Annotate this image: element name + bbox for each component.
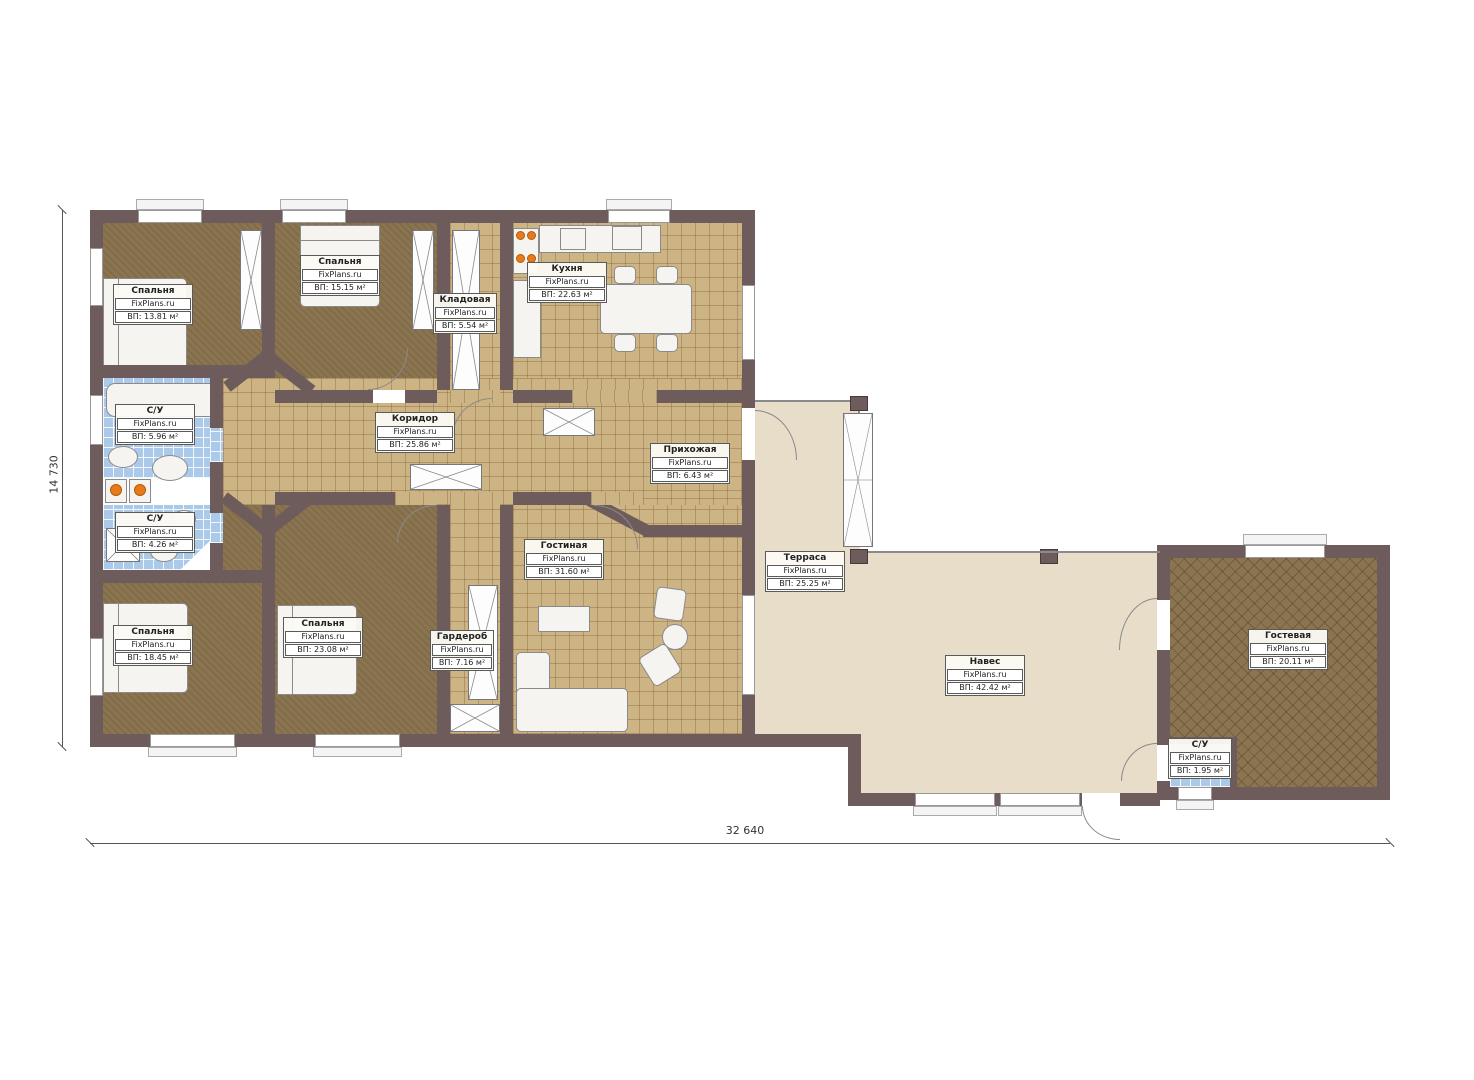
room-area: ВП: 20.11 м² <box>1250 656 1326 668</box>
room-label-bedroom-2: Спальня FixPlans.ru ВП: 15.15 м² <box>300 255 380 296</box>
room-area: ВП: 25.25 м² <box>767 578 843 590</box>
room-name: Коридор <box>377 414 453 425</box>
wall <box>262 505 275 734</box>
room-label-kitchen: Кухня FixPlans.ru ВП: 22.63 м² <box>527 262 607 303</box>
window <box>915 793 995 806</box>
window-sill <box>1176 800 1214 810</box>
room-area: ВП: 13.81 м² <box>115 311 191 323</box>
window <box>90 395 103 445</box>
room-area: ВП: 23.08 м² <box>285 644 361 656</box>
wardrobe-icon <box>412 230 434 330</box>
wall <box>262 223 275 365</box>
washer-drum-icon <box>134 484 146 496</box>
room-brand: FixPlans.ru <box>1170 752 1230 764</box>
canopy-edge <box>868 551 1160 553</box>
chair-icon <box>656 334 678 352</box>
dimension-line-horizontal <box>90 843 1390 844</box>
room-brand: FixPlans.ru <box>377 426 453 438</box>
room-area: ВП: 22.63 м² <box>529 289 605 301</box>
window-sill <box>136 199 204 210</box>
kitchen-counter <box>539 225 661 253</box>
room-brand: FixPlans.ru <box>115 298 191 310</box>
room-label-corridor: Коридор FixPlans.ru ВП: 25.86 м² <box>375 412 455 453</box>
guest-door-opening <box>1157 600 1170 650</box>
window <box>1000 793 1080 806</box>
room-name: Прихожая <box>652 445 728 456</box>
door-opening <box>572 390 657 403</box>
washer-drum-icon <box>110 484 122 496</box>
window-sill <box>148 747 237 757</box>
wall <box>275 390 375 403</box>
room-area: ВП: 42.42 м² <box>947 682 1023 694</box>
canopy-door-opening <box>1082 793 1120 806</box>
room-name: Спальня <box>115 627 191 638</box>
terrace-stairs-icon <box>843 413 873 547</box>
room-label-bathroom-2: С/У FixPlans.ru ВП: 4.26 м² <box>115 512 195 553</box>
room-brand: FixPlans.ru <box>947 669 1023 681</box>
wall <box>513 390 572 403</box>
room-brand: FixPlans.ru <box>432 644 492 656</box>
door-opening <box>591 492 643 505</box>
room-brand: FixPlans.ru <box>302 269 378 281</box>
chair-icon <box>614 334 636 352</box>
chair-icon <box>614 266 636 284</box>
wardrobe-icon <box>410 464 482 490</box>
room-brand: FixPlans.ru <box>767 565 843 577</box>
wall <box>405 390 437 403</box>
terrace-edge <box>755 400 860 402</box>
room-label-hallway: Прихожая FixPlans.ru ВП: 6.43 м² <box>650 443 730 484</box>
room-area: ВП: 6.43 м² <box>652 470 728 482</box>
wall <box>437 505 450 734</box>
wardrobe-icon <box>240 230 262 330</box>
room-name: Спальня <box>115 286 191 297</box>
window-sill <box>913 806 997 816</box>
coffee-table-icon <box>538 606 590 632</box>
room-name: Спальня <box>285 619 361 630</box>
stove-burner-icon <box>516 231 525 240</box>
chair-icon <box>656 266 678 284</box>
room-brand: FixPlans.ru <box>117 418 193 430</box>
room-area: ВП: 7.16 м² <box>432 657 492 669</box>
room-brand: FixPlans.ru <box>115 639 191 651</box>
dining-table-icon <box>600 284 692 334</box>
window <box>282 210 346 223</box>
room-area: ВП: 5.96 м² <box>117 431 193 443</box>
wardrobe-icon <box>450 704 500 732</box>
door-opening <box>210 428 223 462</box>
room-brand: FixPlans.ru <box>529 276 605 288</box>
window <box>138 210 202 223</box>
room-name: Гостиная <box>526 541 602 552</box>
room-label-storage: Кладовая FixPlans.ru ВП: 5.54 м² <box>433 293 497 334</box>
door-arc <box>1082 806 1120 840</box>
room-brand: FixPlans.ru <box>117 526 193 538</box>
room-area: ВП: 1.95 м² <box>1170 765 1230 777</box>
window <box>90 248 103 306</box>
wardrobe-icon <box>543 408 595 436</box>
door-opening <box>373 390 405 403</box>
room-name: Навес <box>947 657 1023 668</box>
room-label-terrace: Терраса FixPlans.ru ВП: 25.25 м² <box>765 551 845 592</box>
room-area: ВП: 31.60 м² <box>526 566 602 578</box>
wall <box>657 390 742 403</box>
window-sill <box>1243 534 1327 545</box>
room-name: Спальня <box>302 257 378 268</box>
room-name: С/У <box>1170 740 1230 751</box>
floor-plan: Спальня FixPlans.ru ВП: 13.81 м² Спальня… <box>0 0 1474 1080</box>
dimension-height-label: 14 730 <box>48 435 61 515</box>
room-name: Гардероб <box>432 632 492 643</box>
wall <box>500 505 513 734</box>
window <box>742 285 755 360</box>
room-brand: FixPlans.ru <box>285 631 361 643</box>
room-name: С/У <box>117 514 193 525</box>
room-label-guest-bathroom: С/У FixPlans.ru ВП: 1.95 м² <box>1168 738 1232 779</box>
sink-icon <box>152 455 188 481</box>
room-area: ВП: 15.15 м² <box>302 282 378 294</box>
dimension-width-label: 32 640 <box>700 824 790 837</box>
room-name: Кухня <box>529 264 605 275</box>
window-sill <box>998 806 1082 816</box>
window <box>150 734 235 747</box>
room-label-bedroom-4: Спальня FixPlans.ru ВП: 23.08 м² <box>283 617 363 658</box>
sofa-icon <box>516 688 628 732</box>
room-name: Гостевая <box>1250 631 1326 642</box>
toilet-icon <box>108 446 138 468</box>
bed-pillow-icon <box>300 225 380 241</box>
dimension-line-vertical <box>62 210 63 747</box>
window <box>608 210 670 223</box>
room-brand: FixPlans.ru <box>435 307 495 319</box>
canopy-post <box>850 549 868 564</box>
fridge-icon <box>612 226 642 250</box>
room-area: ВП: 25.86 м² <box>377 439 453 451</box>
window-sill <box>606 199 672 210</box>
armchair-icon <box>653 586 687 622</box>
room-brand: FixPlans.ru <box>1250 643 1326 655</box>
door-opening <box>210 513 223 543</box>
room-name: Терраса <box>767 553 843 564</box>
door-opening <box>450 492 500 505</box>
room-name: Кладовая <box>435 295 495 306</box>
room-label-bathroom-1: С/У FixPlans.ru ВП: 5.96 м² <box>115 404 195 445</box>
room-brand: FixPlans.ru <box>526 553 602 565</box>
entry-door-opening <box>742 408 755 460</box>
window <box>315 734 400 747</box>
window-sill <box>313 747 402 757</box>
wall <box>500 223 513 390</box>
room-label-wardrobe: Гардероб FixPlans.ru ВП: 7.16 м² <box>430 630 494 671</box>
stove-burner-icon <box>516 254 525 263</box>
wall <box>513 492 591 505</box>
wall <box>643 525 742 537</box>
terrace-post <box>850 396 868 411</box>
room-area: ВП: 18.45 м² <box>115 652 191 664</box>
door-opening <box>395 492 437 505</box>
room-label-bedroom-1: Спальня FixPlans.ru ВП: 13.81 м² <box>113 284 193 325</box>
window <box>1245 545 1325 558</box>
room-label-bedroom-3: Спальня FixPlans.ru ВП: 18.45 м² <box>113 625 193 666</box>
room-label-canopy: Навес FixPlans.ru ВП: 42.42 м² <box>945 655 1025 696</box>
window <box>90 638 103 696</box>
room-name: С/У <box>117 406 193 417</box>
window-sill <box>280 199 348 210</box>
room-label-guest-room: Гостевая FixPlans.ru ВП: 20.11 м² <box>1248 629 1328 670</box>
stove-burner-icon <box>527 231 536 240</box>
room-area: ВП: 5.54 м² <box>435 320 495 332</box>
window <box>1178 787 1212 800</box>
wall <box>103 570 262 583</box>
exterior-wall <box>755 734 861 747</box>
room-label-living-room: Гостиная FixPlans.ru ВП: 31.60 м² <box>524 539 604 580</box>
room-brand: FixPlans.ru <box>652 457 728 469</box>
room-area: ВП: 4.26 м² <box>117 539 193 551</box>
window <box>742 595 755 695</box>
kitchen-sink-icon <box>560 228 586 250</box>
